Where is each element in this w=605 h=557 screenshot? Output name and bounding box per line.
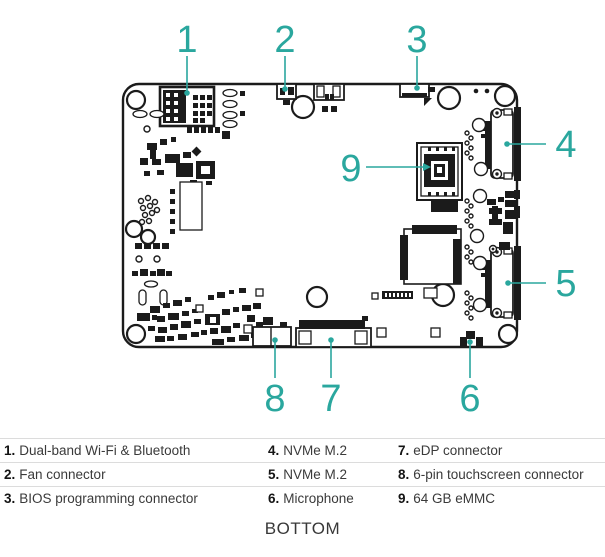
legend-item-number: 7. (398, 443, 409, 458)
soc-chip (400, 225, 461, 284)
legend-item-3: 3.BIOS programming connector (4, 491, 268, 506)
callout-6: 6 (459, 339, 480, 420)
legend-item-7: 7.eDP connector (398, 443, 605, 458)
legend-item-label: BIOS programming connector (19, 491, 198, 506)
legend-item-number: 1. (4, 443, 15, 458)
legend-item-label: Microphone (283, 491, 354, 506)
callout-number-2: 2 (274, 19, 295, 61)
callout-7: 7 (320, 337, 341, 420)
callout-3: 3 (406, 19, 427, 91)
legend-item-label: 6-pin touchscreen connector (413, 467, 583, 482)
legend-item-label: eDP connector (413, 443, 502, 458)
view-title: BOTTOM (0, 519, 605, 539)
pcb-bottom-diagram: 1 2 3 4 5 6 7 8 9 (0, 0, 605, 420)
legend-item-6: 6.Microphone (268, 491, 398, 506)
callout-number-5: 5 (555, 263, 576, 305)
legend-item-number: 8. (398, 467, 409, 482)
callout-number-7: 7 (320, 378, 341, 420)
legend-item-number: 6. (268, 491, 279, 506)
legend-row-1: 1.Dual-band Wi-Fi & Bluetooth 4.NVMe M.2… (0, 438, 605, 462)
legend-item-9: 9.64 GB eMMC (398, 491, 605, 506)
legend-row-2: 2.Fan connector 5.NVMe M.2 8.6-pin touch… (0, 462, 605, 486)
legend-item-label: 64 GB eMMC (413, 491, 495, 506)
callout-number-9: 9 (340, 148, 361, 190)
legend-item-label: NVMe M.2 (283, 467, 347, 482)
legend-item-number: 5. (268, 467, 279, 482)
legend-item-1: 1.Dual-band Wi-Fi & Bluetooth (4, 443, 268, 458)
legend-item-number: 4. (268, 443, 279, 458)
legend-item-label: NVMe M.2 (283, 443, 347, 458)
callout-8: 8 (264, 337, 285, 420)
legend-item-5: 5.NVMe M.2 (268, 467, 398, 482)
legend-item-number: 3. (4, 491, 15, 506)
callout-number-6: 6 (459, 378, 480, 420)
callout-number-3: 3 (406, 19, 427, 61)
legend-item-number: 9. (398, 491, 409, 506)
legend-item-8: 8.6-pin touchscreen connector (398, 467, 605, 482)
callout-number-1: 1 (176, 19, 197, 61)
legend-item-number: 2. (4, 467, 15, 482)
legend-item-2: 2.Fan connector (4, 467, 268, 482)
legend-item-4: 4.NVMe M.2 (268, 443, 398, 458)
legend-row-3: 3.BIOS programming connector 6.Microphon… (0, 486, 605, 510)
board-diagram-page: 1 2 3 4 5 6 7 8 9 1.Dual-band Wi-Fi & Bl… (0, 0, 605, 557)
callout-2: 2 (274, 19, 295, 92)
legend-table: 1.Dual-band Wi-Fi & Bluetooth 4.NVMe M.2… (0, 438, 605, 510)
legend-item-label: Dual-band Wi-Fi & Bluetooth (19, 443, 190, 458)
legend-item-label: Fan connector (19, 467, 105, 482)
callout-number-4: 4 (555, 124, 576, 166)
callout-number-8: 8 (264, 378, 285, 420)
